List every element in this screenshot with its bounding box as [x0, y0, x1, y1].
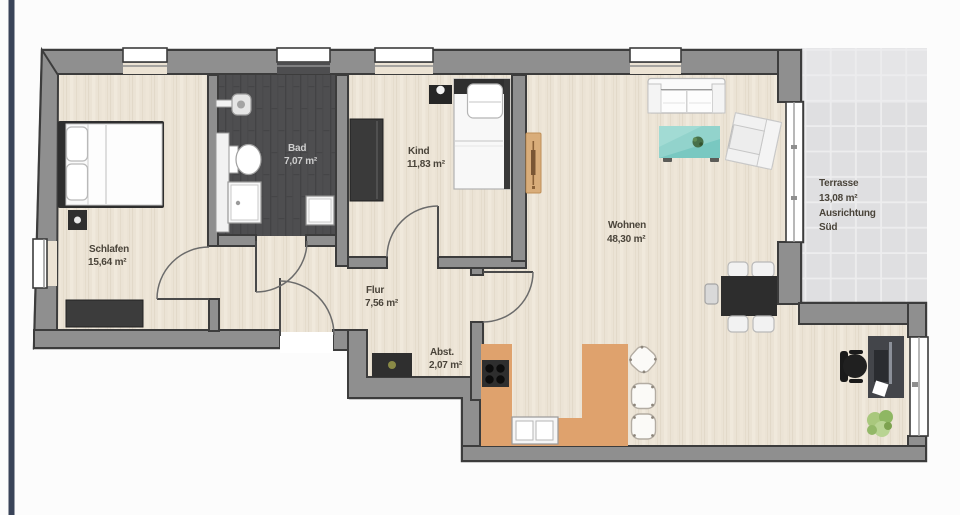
svg-text:11,83 m²: 11,83 m²	[407, 159, 446, 170]
svg-text:Ausrichtung: Ausrichtung	[819, 208, 876, 219]
svg-text:13,08 m²: 13,08 m²	[819, 193, 858, 204]
svg-text:48,30 m²: 48,30 m²	[607, 234, 646, 245]
svg-text:7,56 m²: 7,56 m²	[365, 298, 399, 309]
svg-text:15,64 m²: 15,64 m²	[88, 257, 127, 268]
svg-text:Bad: Bad	[288, 143, 306, 154]
svg-text:Abst.: Abst.	[430, 347, 454, 358]
svg-text:2,07 m²: 2,07 m²	[429, 360, 463, 371]
svg-text:Kind: Kind	[408, 146, 430, 157]
svg-text:Wohnen: Wohnen	[608, 220, 646, 231]
svg-text:Süd: Süd	[819, 222, 837, 233]
svg-text:Schlafen: Schlafen	[89, 244, 129, 255]
svg-text:Flur: Flur	[366, 285, 384, 296]
svg-text:Terrasse: Terrasse	[819, 178, 859, 189]
svg-text:7,07 m²: 7,07 m²	[284, 156, 318, 167]
